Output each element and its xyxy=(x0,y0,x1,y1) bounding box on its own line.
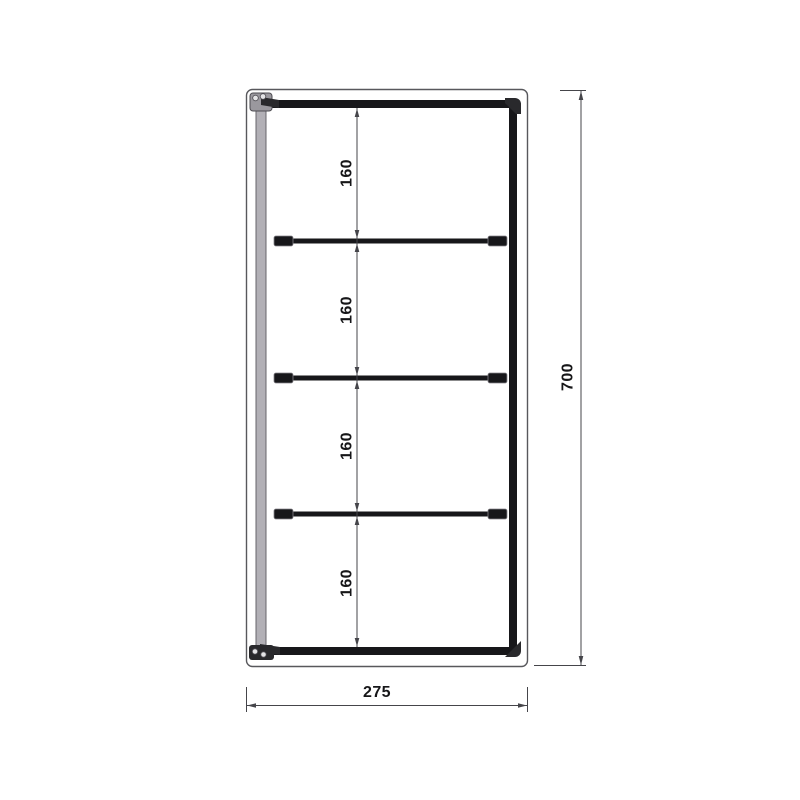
dimension-arrow-up xyxy=(355,109,360,118)
width-dimension-line: 275 xyxy=(247,684,528,712)
height-dimension-line: 700 xyxy=(534,91,586,666)
screw-icon xyxy=(253,95,259,101)
spacing-dimension-label-3: 160 xyxy=(339,432,356,460)
corner-fitting-top-left xyxy=(250,93,279,111)
drawing-svg: 160 160 160 160 700 275 xyxy=(0,0,800,800)
dimension-arrow-up xyxy=(355,244,360,253)
dimension-arrow-up xyxy=(355,517,360,526)
width-dimension-label: 275 xyxy=(363,684,391,701)
shelf-end-cap xyxy=(488,509,507,519)
frame-left-profile xyxy=(256,100,266,655)
shelf-rail xyxy=(274,509,507,519)
corner-fitting-bottom-left xyxy=(249,644,280,660)
shelf-end-cap xyxy=(274,373,293,383)
spacing-dimension-label-4: 160 xyxy=(339,569,356,597)
dimension-arrow-up xyxy=(579,91,584,100)
spacing-dimension-label-2: 160 xyxy=(339,296,356,324)
shelf-rail xyxy=(274,236,507,246)
shelf-bar xyxy=(282,512,494,517)
screw-icon xyxy=(261,652,266,657)
technical-drawing-canvas: 160 160 160 160 700 275 xyxy=(0,0,800,800)
shelf-end-cap xyxy=(274,236,293,246)
shelf-bar xyxy=(282,376,494,381)
dimension-arrow-down xyxy=(355,503,360,512)
frame-top-rail xyxy=(258,100,519,108)
dimension-arrow-right xyxy=(518,703,527,708)
dimension-arrow-left xyxy=(247,703,256,708)
shelf-end-cap xyxy=(274,509,293,519)
shelf-rail xyxy=(274,373,507,383)
dimension-arrow-down xyxy=(355,367,360,376)
shelf-end-cap xyxy=(488,236,507,246)
screw-icon xyxy=(260,94,266,100)
height-dimension-label: 700 xyxy=(560,363,577,391)
shelf-end-cap xyxy=(488,373,507,383)
dimension-arrow-down xyxy=(579,656,584,665)
dimension-arrow-down xyxy=(355,230,360,239)
spacing-dimension-label-1: 160 xyxy=(339,159,356,187)
dimension-arrow-down xyxy=(355,638,360,647)
shelf-bar xyxy=(282,239,494,244)
frame-right-rail xyxy=(509,100,517,655)
screw-icon xyxy=(252,649,257,654)
frame-bottom-rail xyxy=(258,647,519,655)
dimension-arrow-up xyxy=(355,381,360,390)
